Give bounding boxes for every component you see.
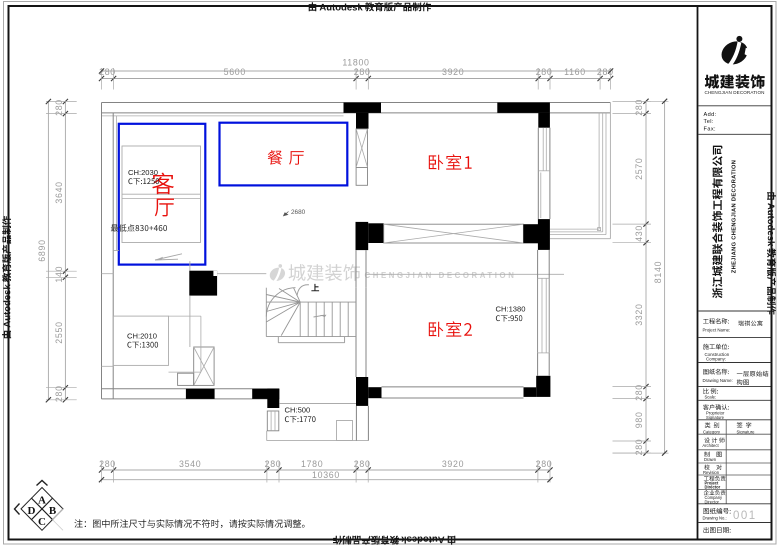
svg-text:B: B <box>49 505 57 517</box>
svg-text:Scale:: Scale: <box>705 395 717 400</box>
svg-text:CH:2030: CH:2030 <box>128 168 158 177</box>
svg-text:1780: 1780 <box>301 459 323 469</box>
svg-text:Drawn: Drawn <box>704 457 717 462</box>
svg-text:3920: 3920 <box>442 459 464 469</box>
svg-text:Drawing Name:: Drawing Name: <box>703 378 733 383</box>
svg-text:Fax:: Fax: <box>704 126 717 132</box>
svg-text:Add:: Add: <box>704 112 717 118</box>
svg-text:ZHEJIANG CHENGJIAN DECORATION: ZHEJIANG CHENGJIAN DECORATION <box>732 160 738 273</box>
svg-text:430: 430 <box>634 225 644 242</box>
svg-text:Company:: Company: <box>706 357 726 362</box>
svg-text:280: 280 <box>597 67 614 77</box>
svg-text:CHENGJIAN DECORATION: CHENGJIAN DECORATION <box>365 271 517 280</box>
svg-text:CH:500: CH:500 <box>285 406 311 415</box>
svg-text:140: 140 <box>54 266 64 283</box>
svg-text:Director: Director <box>705 485 721 490</box>
svg-text:Project Name:: Project Name: <box>703 328 731 333</box>
svg-text:Signature: Signature <box>706 415 725 420</box>
svg-text:980: 980 <box>634 411 644 428</box>
svg-text:3640: 3640 <box>54 181 64 203</box>
svg-text:CH:2010: CH:2010 <box>127 332 157 341</box>
svg-text:CH:1380: CH:1380 <box>496 305 526 314</box>
svg-text:001: 001 <box>733 510 757 522</box>
svg-text:6890: 6890 <box>37 239 47 261</box>
svg-text:Revision: Revision <box>703 470 720 475</box>
svg-text:Architect: Architect <box>702 443 719 448</box>
svg-text:2680: 2680 <box>291 209 306 216</box>
svg-text:8140: 8140 <box>653 261 663 283</box>
svg-text:3320: 3320 <box>634 303 644 325</box>
svg-text:2570: 2570 <box>634 158 644 180</box>
svg-text:D: D <box>28 505 36 517</box>
svg-text:5600: 5600 <box>224 67 246 77</box>
svg-text:A: A <box>38 495 46 507</box>
svg-text:Tel:: Tel: <box>704 119 714 125</box>
svg-text:11800: 11800 <box>342 58 369 68</box>
svg-text:C: C <box>38 516 46 528</box>
svg-text:3540: 3540 <box>179 459 201 469</box>
svg-text:3920: 3920 <box>442 67 464 77</box>
svg-text:2550: 2550 <box>54 321 64 343</box>
svg-text:Drawing No.:: Drawing No.: <box>703 516 727 521</box>
svg-text:10360: 10360 <box>312 470 340 480</box>
svg-text:CHENGJIAN DECORATION: CHENGJIAN DECORATION <box>704 90 764 95</box>
svg-text:1160: 1160 <box>564 67 586 77</box>
